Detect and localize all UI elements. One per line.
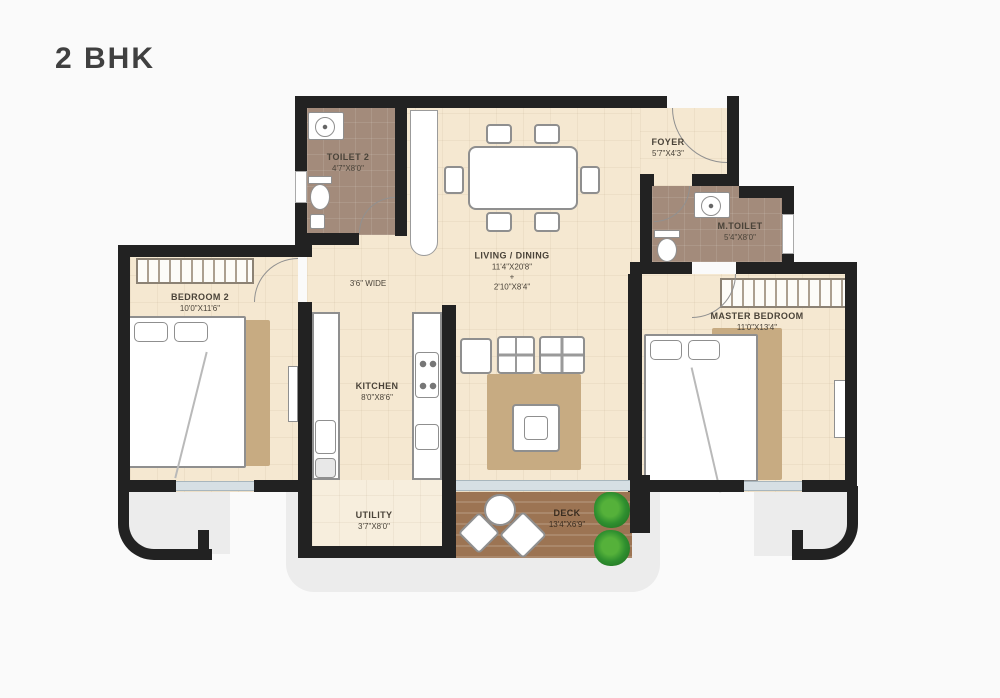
wall [295,96,667,108]
coffee-table-inner [524,416,548,440]
dining-chair [580,166,600,194]
deck-label: DECK 13'4"X6'9" [549,508,585,530]
wc-icon [310,184,330,210]
wc-icon [657,238,677,262]
floor-plan: 2 BHK [0,0,1000,698]
wall [118,480,176,492]
master-wardrobe [720,278,850,308]
room-name: DECK [549,508,585,520]
wall [307,233,359,245]
wc-tank [308,176,332,184]
pillow [688,340,720,360]
foyer-label: FOYER 5'7"X4'3" [651,137,684,159]
wall [298,302,312,558]
wall [692,174,739,186]
passage-dims: 3'6" WIDE [350,279,386,289]
room-dims: 2'10"X8'4" [474,283,549,293]
wall [118,245,130,492]
page-title: 2 BHK [55,42,155,76]
kitchen-sink-icon [315,420,336,454]
kitchen-module [415,424,439,450]
sofa [497,336,535,374]
passage-label: 3'6" WIDE [350,279,386,289]
wc-tank [654,230,680,238]
wall [442,305,456,558]
kitchen-appliance [315,458,336,478]
wall [198,530,209,552]
room-dims: 8'0"X8'6" [356,393,399,403]
wall [736,262,857,274]
wall [395,96,407,236]
plant-icon [594,530,630,566]
dining-chair [534,124,560,144]
m-toilet-label: M.TOILET 5'4"X8'0" [717,221,762,243]
room-dims: 3'7"X8'0" [356,522,393,532]
plus-sign: + [474,273,549,283]
room-dims: 10'0"X11'6" [171,304,229,314]
plant-icon [594,492,630,528]
room-name: M.TOILET [717,221,762,233]
room-dims: 5'7"X4'3" [651,149,684,159]
wall [640,480,744,492]
floor-drain-icon [310,214,325,229]
room-name: LIVING / DINING [474,251,549,263]
armchair [460,338,492,374]
dining-chair [444,166,464,194]
room-name: FOYER [651,137,684,149]
wall [298,546,456,558]
room-name: MASTER BEDROOM [710,311,803,323]
wall [640,174,654,186]
window [295,171,307,203]
room-dims: 4'7"X8'0" [327,164,370,174]
utility-label: UTILITY 3'7"X8'0" [356,510,393,532]
master-bedroom-label: MASTER BEDROOM 11'0"X13'4" [710,311,803,333]
room-dims: 11'0"X13'4" [710,323,803,333]
deck-sliding-door [456,480,630,491]
dining-chair [534,212,560,232]
wall [640,186,652,262]
wall [295,203,307,245]
washbasin-icon [315,117,335,137]
kitchen-counter-left [312,312,340,480]
toilet2-label: TOILET 2 4'7"X8'0" [327,152,370,174]
room-dims: 13'4"X6'9" [549,520,585,530]
wall [630,262,692,274]
pillow [650,340,682,360]
pillow [134,322,168,342]
open-door-leaf [410,110,438,256]
wall [118,245,312,257]
kitchen-label: KITCHEN 8'0"X8'6" [356,381,399,403]
sofa [539,336,585,374]
pillow [174,322,208,342]
washbasin-icon [701,196,721,216]
wall [727,96,739,186]
room-dims: 11'4"X20'8" [474,262,549,272]
room-name: BEDROOM 2 [171,292,229,304]
living-dining-label: LIVING / DINING 11'4"X20'8" + 2'10"X8'4" [474,251,549,294]
room-name: TOILET 2 [327,152,370,164]
wall [792,530,803,552]
room-name: KITCHEN [356,381,399,393]
wall [254,480,312,492]
wall [802,480,845,492]
wall [628,274,642,492]
stove-icon [415,352,439,398]
room-name: UTILITY [356,510,393,522]
bedroom2-label: BEDROOM 2 10'0"X11'6" [171,292,229,314]
wall [295,96,307,171]
dining-chair [486,124,512,144]
bedroom2-dresser [288,366,298,422]
dining-table [468,146,578,210]
wall [845,262,857,492]
room-dims: 5'4"X8'0" [717,233,762,243]
dining-chair [486,212,512,232]
bedroom2-window [176,481,254,491]
master-window [744,481,802,491]
mtoilet-window [782,214,794,254]
bedroom2-wardrobe [136,258,254,284]
